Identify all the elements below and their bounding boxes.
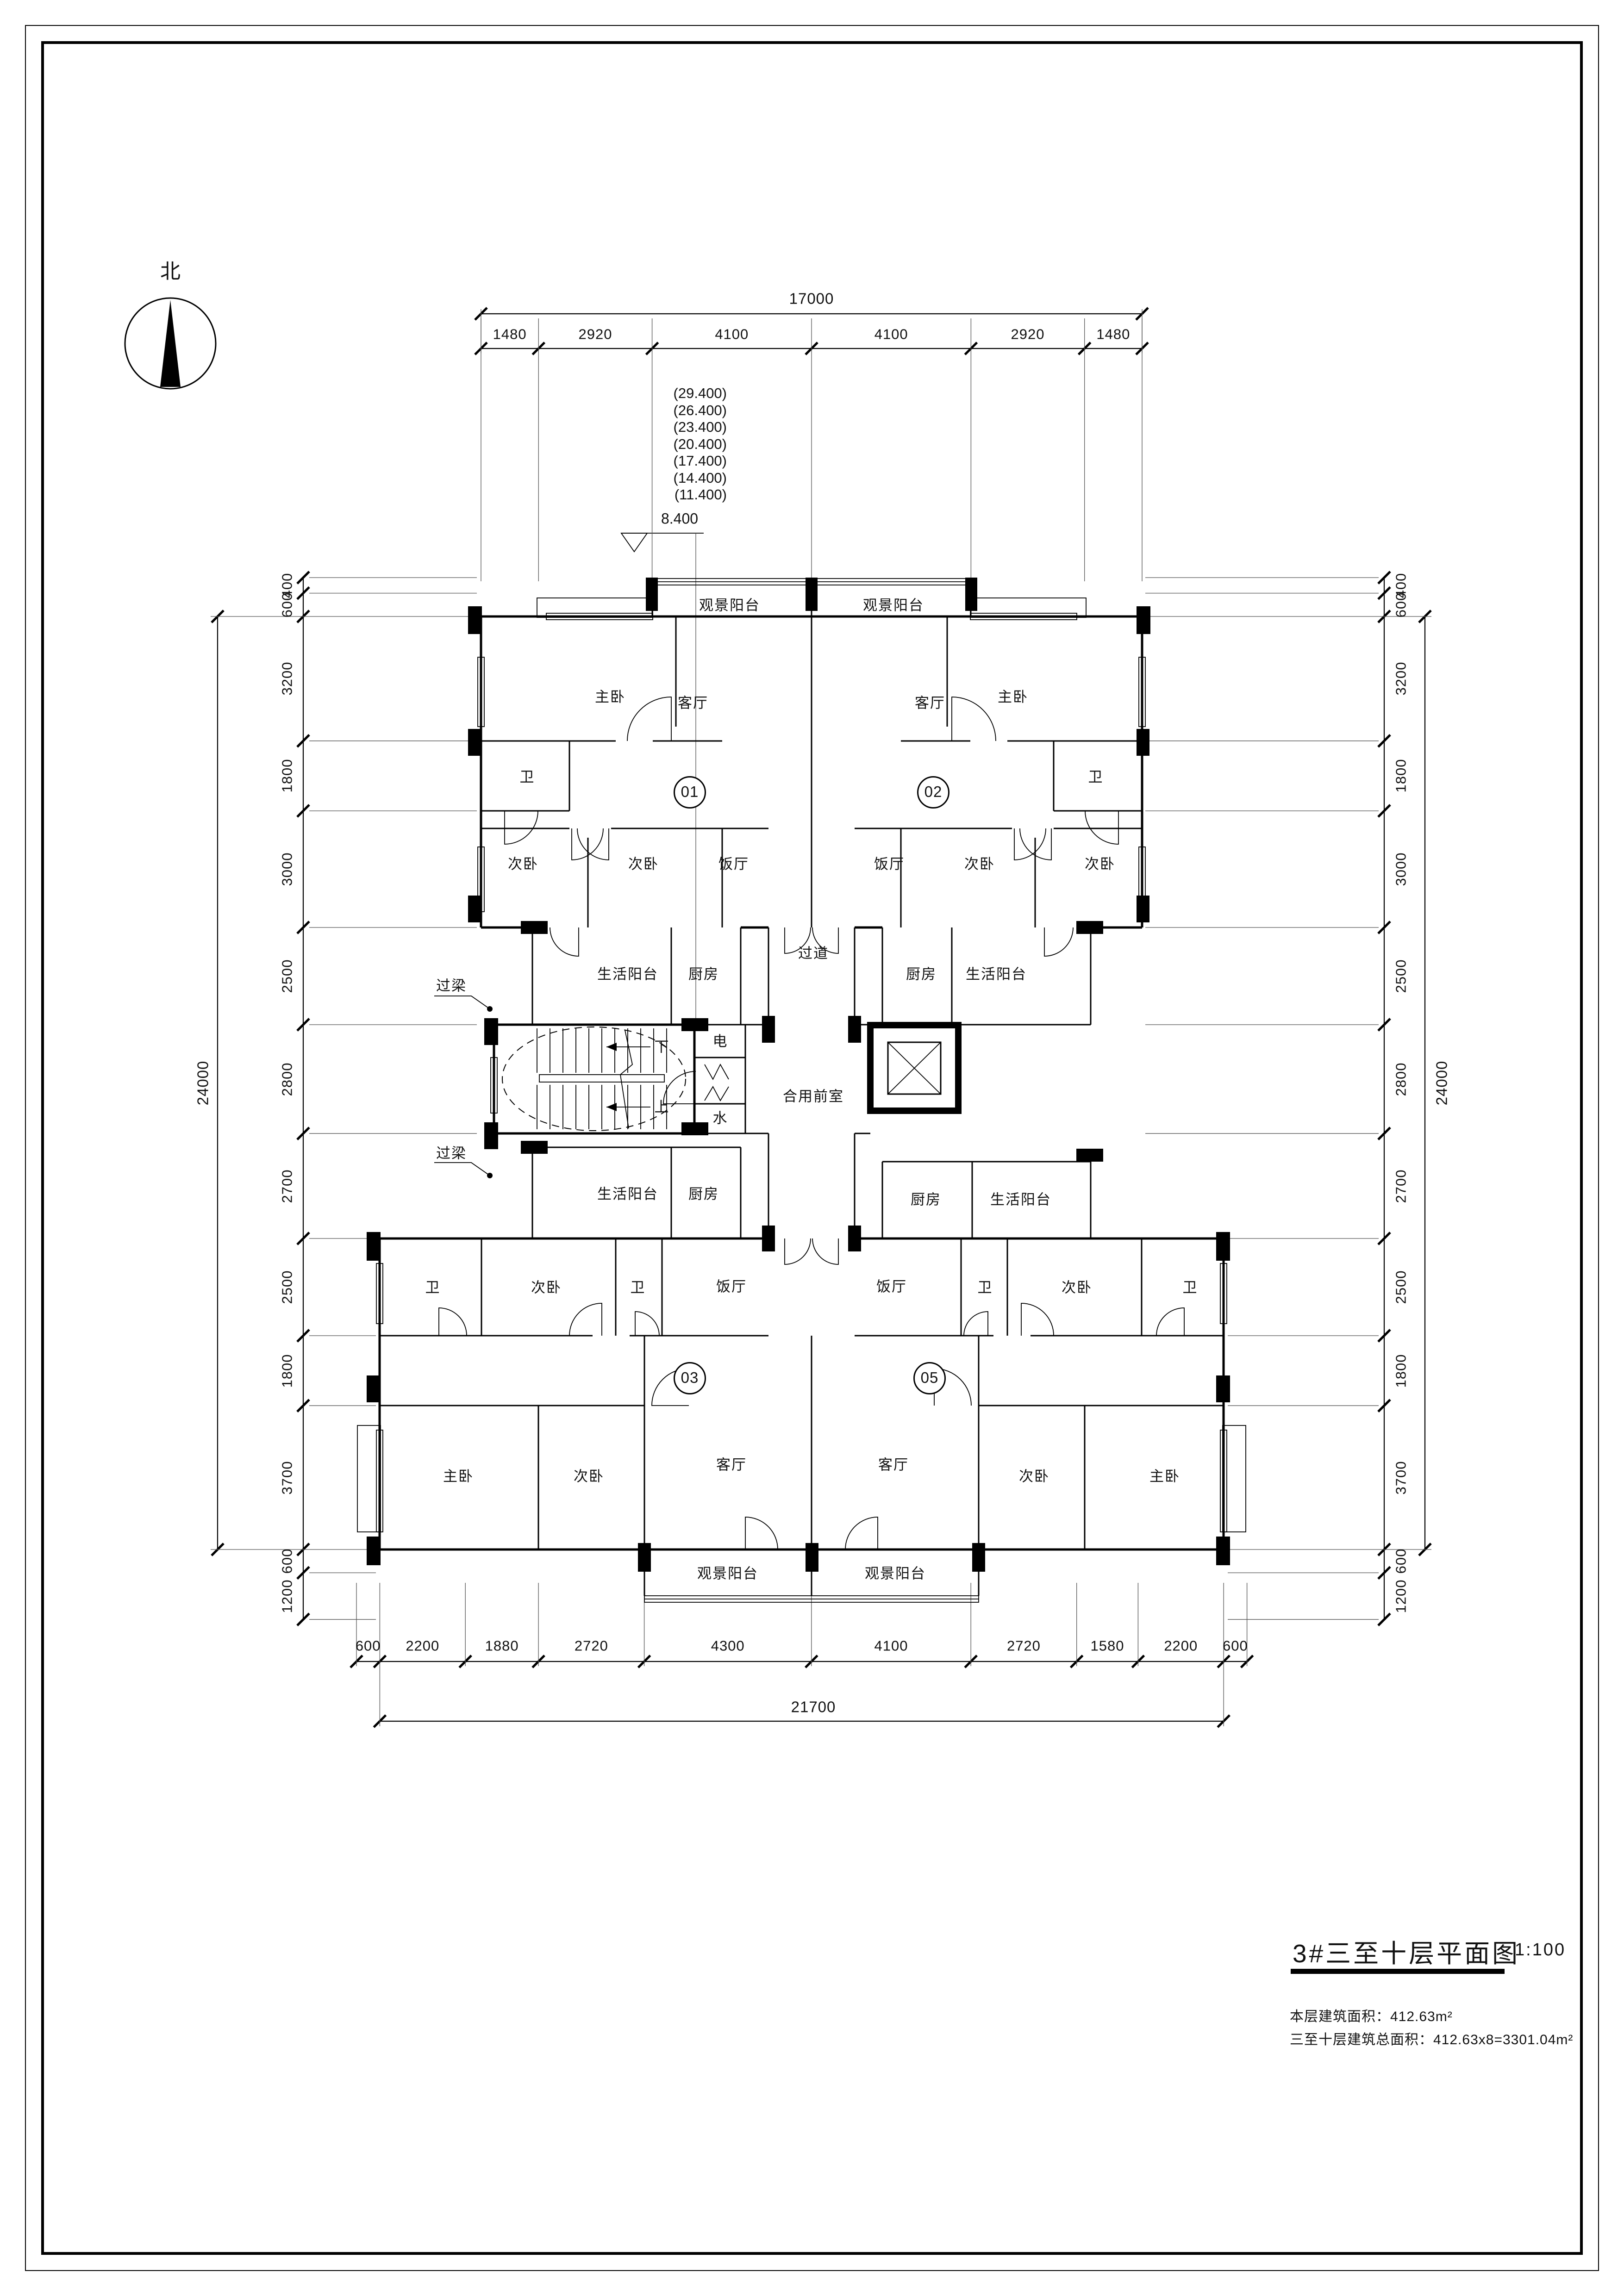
elevation-label: (23.400) [620, 420, 727, 434]
base-elevation: 8.400 [661, 510, 698, 528]
area-note-floor: 本层建筑面积：412.63m² [1290, 2005, 1453, 2025]
room-label: 卫 [520, 770, 535, 784]
room-label: 饭厅 [874, 857, 905, 871]
dim-label: 2720 [575, 1639, 608, 1653]
area-note-total: 三至十层建筑总面积：412.63x8=3301.04m² [1290, 2028, 1573, 2048]
dim-label: 2800 [1394, 1062, 1408, 1096]
dim-label: 2700 [280, 1169, 294, 1203]
dim-label: 2500 [1394, 1270, 1408, 1304]
dim-label: 1800 [1394, 759, 1408, 793]
room-label: 厨房 [688, 1187, 719, 1201]
elevation-label: (20.400) [620, 437, 727, 451]
room-label: 饭厅 [716, 1280, 747, 1294]
room-label: 下 [655, 1040, 670, 1054]
room-label: 主卧 [1149, 1469, 1180, 1484]
unit-number: 03 [674, 1362, 706, 1394]
unit-number: 02 [917, 776, 949, 809]
room-label: 饭厅 [718, 857, 749, 871]
dim-label: 3700 [280, 1461, 294, 1494]
room-label: 主卧 [595, 690, 625, 704]
room-label: 次卧 [628, 857, 659, 871]
room-label: 客厅 [878, 1458, 909, 1472]
title-underline [1291, 1969, 1505, 1974]
dim-label: 600 [280, 592, 294, 617]
dim-label: 3700 [1394, 1461, 1408, 1494]
north-label: 北 [160, 255, 181, 284]
unit-number: 01 [674, 776, 706, 809]
room-label: 观景阳台 [699, 598, 760, 613]
dim-label: 2700 [1394, 1169, 1408, 1203]
room-label: 卫 [1183, 1281, 1198, 1295]
room-label: 次卧 [964, 857, 995, 871]
duct-symbol [705, 1064, 729, 1101]
room-label: 次卧 [574, 1469, 604, 1484]
room-label: 生活阳台 [597, 1187, 658, 1201]
dim-label: 2200 [1164, 1639, 1198, 1653]
dim-total: 24000 [1434, 1061, 1449, 1106]
room-label: 饭厅 [876, 1280, 907, 1294]
dim-label: 4100 [715, 327, 749, 342]
elevation-label: (26.400) [620, 403, 727, 417]
dim-label: 3000 [1394, 852, 1408, 886]
room-label: 卫 [631, 1281, 646, 1295]
elevation-label: (17.400) [620, 454, 727, 468]
dim-label: 3200 [280, 662, 294, 696]
dim-label: 1200 [1394, 1579, 1408, 1613]
drawing-sheet: 1480292041004100292014801700060022001880… [0, 0, 1624, 2296]
dim-label: 2500 [1394, 959, 1408, 993]
room-label: 厨房 [906, 967, 937, 982]
room-label: 合用前室 [783, 1089, 844, 1104]
dim-label: 4100 [874, 1639, 908, 1653]
dim-label: 4100 [874, 327, 908, 342]
dim-label: 2800 [280, 1062, 294, 1096]
dim-label: 1800 [280, 759, 294, 793]
room-label: 上 [655, 1100, 670, 1114]
room-label: 观景阳台 [863, 598, 924, 613]
dim-label: 2500 [280, 959, 294, 993]
dim-label: 2920 [1011, 327, 1045, 342]
room-label: 主卧 [998, 690, 1028, 704]
drawing-title: 3#三至十层平面图 [1293, 1933, 1520, 1970]
room-label: 客厅 [678, 696, 708, 710]
elevation-label: (11.400) [620, 487, 727, 502]
room-label: 次卧 [1085, 857, 1115, 871]
dim-total: 24000 [195, 1061, 211, 1106]
dim-label: 1880 [485, 1639, 519, 1653]
room-label: 厨房 [911, 1193, 941, 1207]
room-label: 电 [713, 1034, 728, 1049]
room-label: 观景阳台 [865, 1567, 926, 1581]
elevation-label: (29.400) [620, 386, 727, 400]
room-label: 客厅 [716, 1458, 747, 1472]
elevation-label: (14.400) [620, 471, 727, 485]
dim-label: 2720 [1007, 1639, 1041, 1653]
dim-label: 1800 [280, 1354, 294, 1388]
room-label: 厨房 [688, 967, 719, 982]
room-label: 次卧 [508, 857, 538, 871]
dim-total: 21700 [791, 1699, 836, 1715]
room-label: 卫 [1088, 770, 1104, 784]
dim-label: 600 [280, 1549, 294, 1574]
room-label: 过道 [798, 946, 829, 961]
room-label: 观景阳台 [697, 1567, 758, 1581]
dim-label: 3000 [280, 852, 294, 886]
drawing-scale: 1:100 [1515, 1940, 1566, 1960]
dim-label: 600 [356, 1639, 381, 1653]
room-label: 次卧 [531, 1281, 562, 1295]
room-label: 次卧 [1019, 1469, 1049, 1484]
dim-label: 600 [1394, 1549, 1408, 1574]
elevator-shaft [870, 1025, 958, 1111]
room-label: 过梁 [436, 979, 467, 993]
room-label: 生活阳台 [990, 1193, 1051, 1207]
dim-label: 4300 [711, 1639, 745, 1653]
unit-number: 05 [913, 1362, 946, 1394]
dim-label: 600 [1394, 592, 1408, 617]
room-label: 生活阳台 [966, 967, 1027, 982]
dim-label: 600 [1223, 1639, 1248, 1653]
room-label: 卫 [425, 1281, 441, 1295]
room-label: 主卧 [443, 1469, 474, 1484]
room-label: 卫 [978, 1281, 993, 1295]
dim-label: 1480 [1096, 327, 1130, 342]
inner-border [43, 43, 1581, 2253]
dim-label: 1580 [1091, 1639, 1124, 1653]
room-label: 过梁 [436, 1146, 467, 1161]
room-label: 客厅 [915, 696, 945, 710]
dim-label: 1200 [280, 1579, 294, 1613]
room-label: 水 [713, 1111, 728, 1126]
dim-total: 17000 [789, 291, 834, 306]
dim-label: 1800 [1394, 1354, 1408, 1388]
dim-label: 3200 [1394, 662, 1408, 696]
room-label: 生活阳台 [597, 967, 658, 982]
dim-label: 2200 [406, 1639, 439, 1653]
dim-label: 2500 [280, 1270, 294, 1304]
room-label: 次卧 [1062, 1281, 1092, 1295]
north-arrow-icon [125, 298, 216, 389]
dim-label: 2920 [578, 327, 612, 342]
dim-label: 1480 [493, 327, 527, 342]
